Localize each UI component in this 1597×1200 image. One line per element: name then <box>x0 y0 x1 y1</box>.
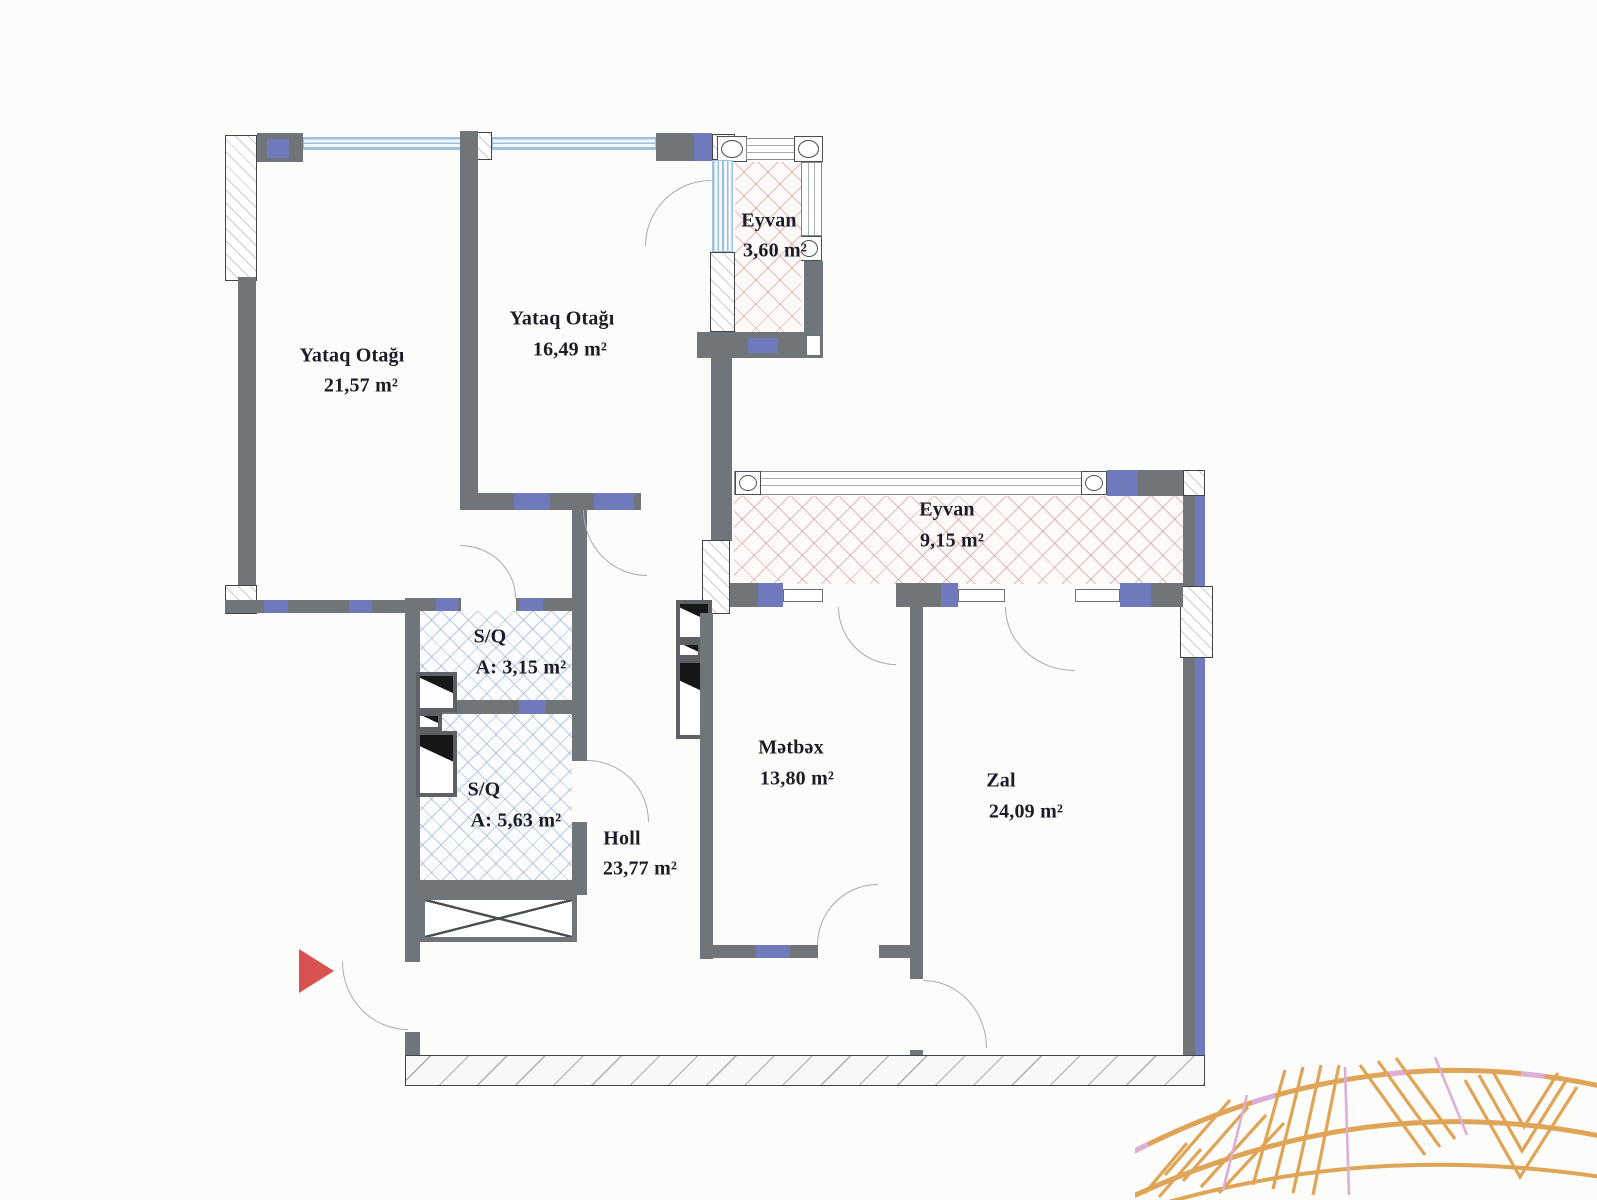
room-label-hall-name: Holl <box>603 828 640 851</box>
vent-shaft <box>416 731 457 797</box>
railing <box>734 471 1108 495</box>
room-label-kitchen-name: Mətbəx <box>758 737 824 760</box>
wall-segment <box>238 277 256 587</box>
room-label-balcony-2-area: 9,15 m² <box>920 530 984 553</box>
wall-accent <box>519 598 543 611</box>
room-label-kitchen-area: 13,80 m² <box>760 768 834 791</box>
wall-accent <box>1107 470 1138 496</box>
wall-accent <box>758 583 783 607</box>
wall-accent <box>1120 583 1151 607</box>
wall-accent <box>1195 496 1205 586</box>
wall-segment <box>700 613 713 959</box>
wall-accent <box>694 133 712 161</box>
room-label-balcony-2-name: Eyvan <box>919 499 974 522</box>
wall-accent <box>1195 658 1205 1055</box>
door-arc <box>923 980 987 1048</box>
room-label-livingroom-area: 24,09 m² <box>989 801 1063 824</box>
wall-segment <box>711 358 732 541</box>
door-sill <box>783 589 823 602</box>
wall-accent <box>267 139 289 158</box>
door-arc <box>583 510 647 576</box>
entrance-arrow-icon <box>299 949 334 993</box>
column-hatched <box>1183 470 1205 496</box>
wall-accent <box>519 700 546 714</box>
room-label-hall-area: 23,77 m² <box>603 858 677 881</box>
shaft-x-box <box>420 895 577 942</box>
room-label-bedroom-2-area: 16,49 m² <box>533 339 607 362</box>
vent-shaft <box>416 672 457 712</box>
wall-segment <box>1138 470 1184 496</box>
vent-shaft <box>416 712 442 731</box>
door-sill <box>1075 589 1120 602</box>
wall-segment <box>225 600 421 613</box>
wall-segment <box>460 131 478 497</box>
wall-segment <box>656 133 696 161</box>
entrance-door-arc <box>342 962 408 1030</box>
door-arc <box>645 180 711 246</box>
room-label-livingroom-name: Zal <box>986 770 1016 793</box>
wall-segment <box>405 880 577 895</box>
wall-accent <box>264 600 288 613</box>
door-arc <box>587 760 649 822</box>
wall-segment <box>1151 583 1183 607</box>
wall-accent <box>594 493 634 510</box>
wall-segment <box>910 607 923 979</box>
column-hatched <box>225 135 257 281</box>
railing <box>801 162 822 236</box>
room-label-sq-2-name: S/Q <box>468 779 501 802</box>
room-label-balcony-1-area: 3,60 m² <box>743 240 807 263</box>
railing-post <box>717 136 747 162</box>
room-label-sq-1-name: S/Q <box>474 626 507 649</box>
wall-segment <box>730 583 758 607</box>
wall-inset <box>806 335 821 356</box>
wall-segment <box>572 510 587 761</box>
room-label-sq-2-area: A: 5,63 m² <box>471 810 562 833</box>
railing <box>746 138 796 160</box>
floor-plan: Yataq Otağı 21,57 m² Yataq Otağı 16,49 m… <box>0 0 1597 1200</box>
vent-shaft <box>676 641 702 659</box>
door-arc <box>460 545 516 598</box>
wall-accent <box>748 338 778 353</box>
decorative-pattern <box>1135 1025 1597 1200</box>
room-label-bedroom-1-name: Yataq Otağı <box>300 345 405 368</box>
wall-accent <box>941 583 958 607</box>
room-label-bedroom-2-name: Yataq Otağı <box>510 308 615 331</box>
wall-accent <box>349 600 372 613</box>
exterior-wall-band <box>405 1055 1205 1086</box>
railing-post <box>794 136 823 162</box>
room-label-bedroom-1-area: 21,57 m² <box>324 375 398 398</box>
railing-post <box>735 471 761 495</box>
room-label-sq-1-area: A: 3,15 m² <box>476 657 567 680</box>
door-arc <box>1005 607 1075 671</box>
door-arc <box>838 607 896 665</box>
wall-segment <box>879 945 912 958</box>
door-sill <box>958 589 1005 602</box>
wall-accent <box>756 945 790 958</box>
balcony-window <box>712 160 733 252</box>
room-label-balcony-1-name: Eyvan <box>741 210 796 233</box>
window <box>303 137 462 150</box>
column-hatched <box>1180 586 1213 658</box>
railing-post <box>1081 471 1107 495</box>
wall-segment <box>804 261 823 334</box>
wall-accent <box>436 598 458 611</box>
column-hatched <box>710 252 735 332</box>
door-arc <box>817 884 878 945</box>
wall-segment <box>896 583 941 607</box>
window <box>492 137 656 150</box>
wall-accent <box>514 493 550 510</box>
